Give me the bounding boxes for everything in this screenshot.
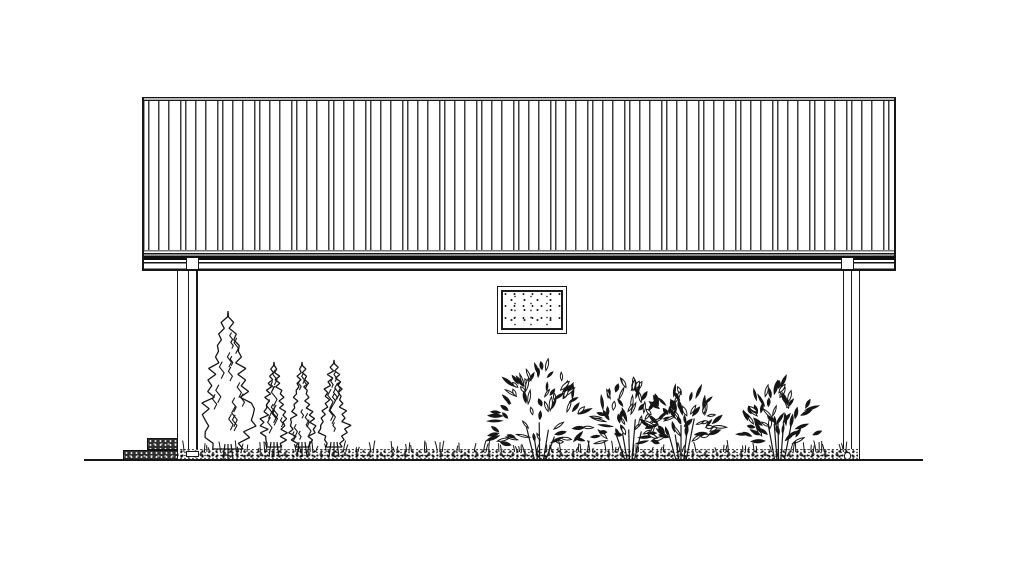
downspout-outlet-left <box>186 257 199 270</box>
roof-edge-right <box>894 97 896 271</box>
downspout-shoe-left <box>186 451 199 458</box>
downspout-outlet-right <box>841 257 854 270</box>
left-corner-trim-line <box>177 271 178 451</box>
wall-window <box>497 286 567 334</box>
elevation-drawing <box>0 0 1011 570</box>
window-glass <box>501 290 564 331</box>
step-upper <box>147 438 178 450</box>
roof-edge-left <box>142 97 144 271</box>
downspout-left <box>188 271 197 453</box>
downspout-right <box>843 271 852 453</box>
ground-line <box>84 459 923 461</box>
roof-eave-fascia <box>143 250 896 271</box>
roof-seam-panels <box>143 101 896 250</box>
downspout-shoe-right <box>844 452 852 460</box>
